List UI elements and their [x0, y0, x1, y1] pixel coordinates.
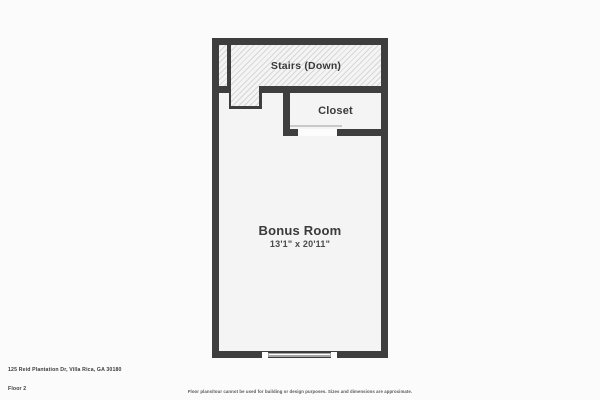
- closet-door-opening: [298, 129, 337, 136]
- property-address: 125 Reid Plantation Dr, Villa Rica, GA 3…: [8, 367, 122, 373]
- wall-below-stairs: [259, 86, 381, 93]
- disclaimer-text: Floor plans/tour cannot be used for buil…: [0, 389, 600, 394]
- stairs-label: Stairs (Down): [231, 45, 381, 86]
- wall-right: [381, 38, 388, 358]
- window-symbol: [268, 353, 331, 358]
- floor-plan-page: Stairs (Down) Closet Bonus Room 13'1" x …: [0, 0, 600, 400]
- bonus-room-label: Bonus Room: [219, 222, 381, 238]
- stairs-landing-hatch: [229, 86, 262, 109]
- window-center-line: [269, 355, 330, 356]
- wall-below-strip: [212, 86, 231, 93]
- stairs-side-strip-hatch: [219, 45, 227, 86]
- wall-top: [212, 38, 388, 45]
- closet-label: Closet: [290, 93, 381, 129]
- window-jamb-right: [331, 352, 337, 358]
- bonus-room-dimensions: 13'1" x 20'11": [219, 238, 381, 250]
